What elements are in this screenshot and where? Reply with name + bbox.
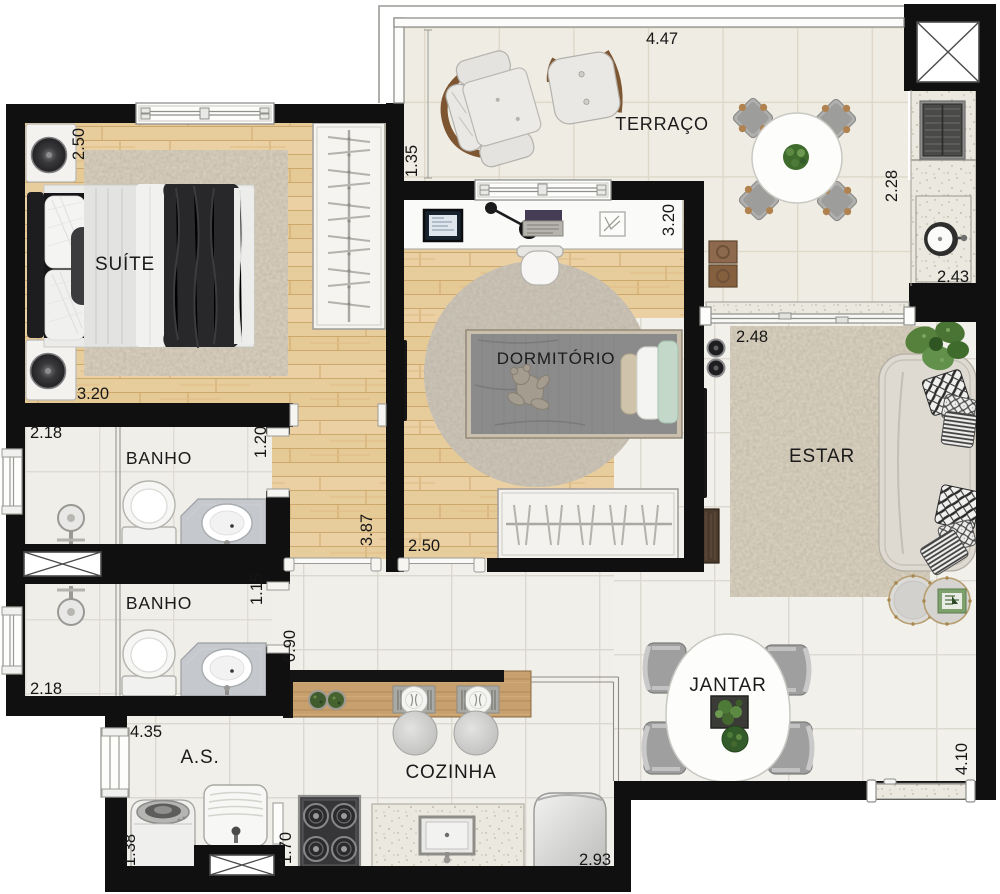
svg-text:2.28: 2.28 xyxy=(883,170,901,202)
svg-text:2.18: 2.18 xyxy=(30,424,62,442)
svg-text:COZINHA: COZINHA xyxy=(405,762,496,783)
svg-text:1.20: 1.20 xyxy=(252,426,270,458)
svg-text:A.S.: A.S. xyxy=(180,747,219,768)
svg-text:2.50: 2.50 xyxy=(70,128,88,160)
svg-text:1.38: 1.38 xyxy=(121,834,139,866)
svg-text:3.87: 3.87 xyxy=(358,514,376,546)
svg-text:BANHO: BANHO xyxy=(126,448,192,468)
svg-text:3.20: 3.20 xyxy=(77,385,109,403)
svg-text:2.50: 2.50 xyxy=(408,537,440,555)
svg-text:2.48: 2.48 xyxy=(736,328,768,346)
svg-text:1.70: 1.70 xyxy=(277,832,295,864)
svg-text:DORMITÓRIO: DORMITÓRIO xyxy=(497,349,616,368)
svg-text:2.43: 2.43 xyxy=(937,268,969,286)
svg-text:BANHO: BANHO xyxy=(126,593,192,613)
svg-text:1.35: 1.35 xyxy=(403,145,421,177)
svg-text:4.10: 4.10 xyxy=(953,743,971,775)
svg-text:ESTAR: ESTAR xyxy=(789,446,855,467)
svg-text:3.20: 3.20 xyxy=(660,204,678,236)
svg-text:SUÍTE: SUÍTE xyxy=(95,254,155,275)
svg-text:2.93: 2.93 xyxy=(579,851,611,869)
svg-text:4.47: 4.47 xyxy=(646,30,678,48)
svg-text:TERRAÇO: TERRAÇO xyxy=(615,114,709,134)
svg-text:2.18: 2.18 xyxy=(30,680,62,698)
svg-text:JANTAR: JANTAR xyxy=(689,675,766,696)
svg-text:0.90: 0.90 xyxy=(281,630,299,662)
svg-text:4.35: 4.35 xyxy=(130,723,162,741)
svg-text:1.15: 1.15 xyxy=(248,573,266,605)
